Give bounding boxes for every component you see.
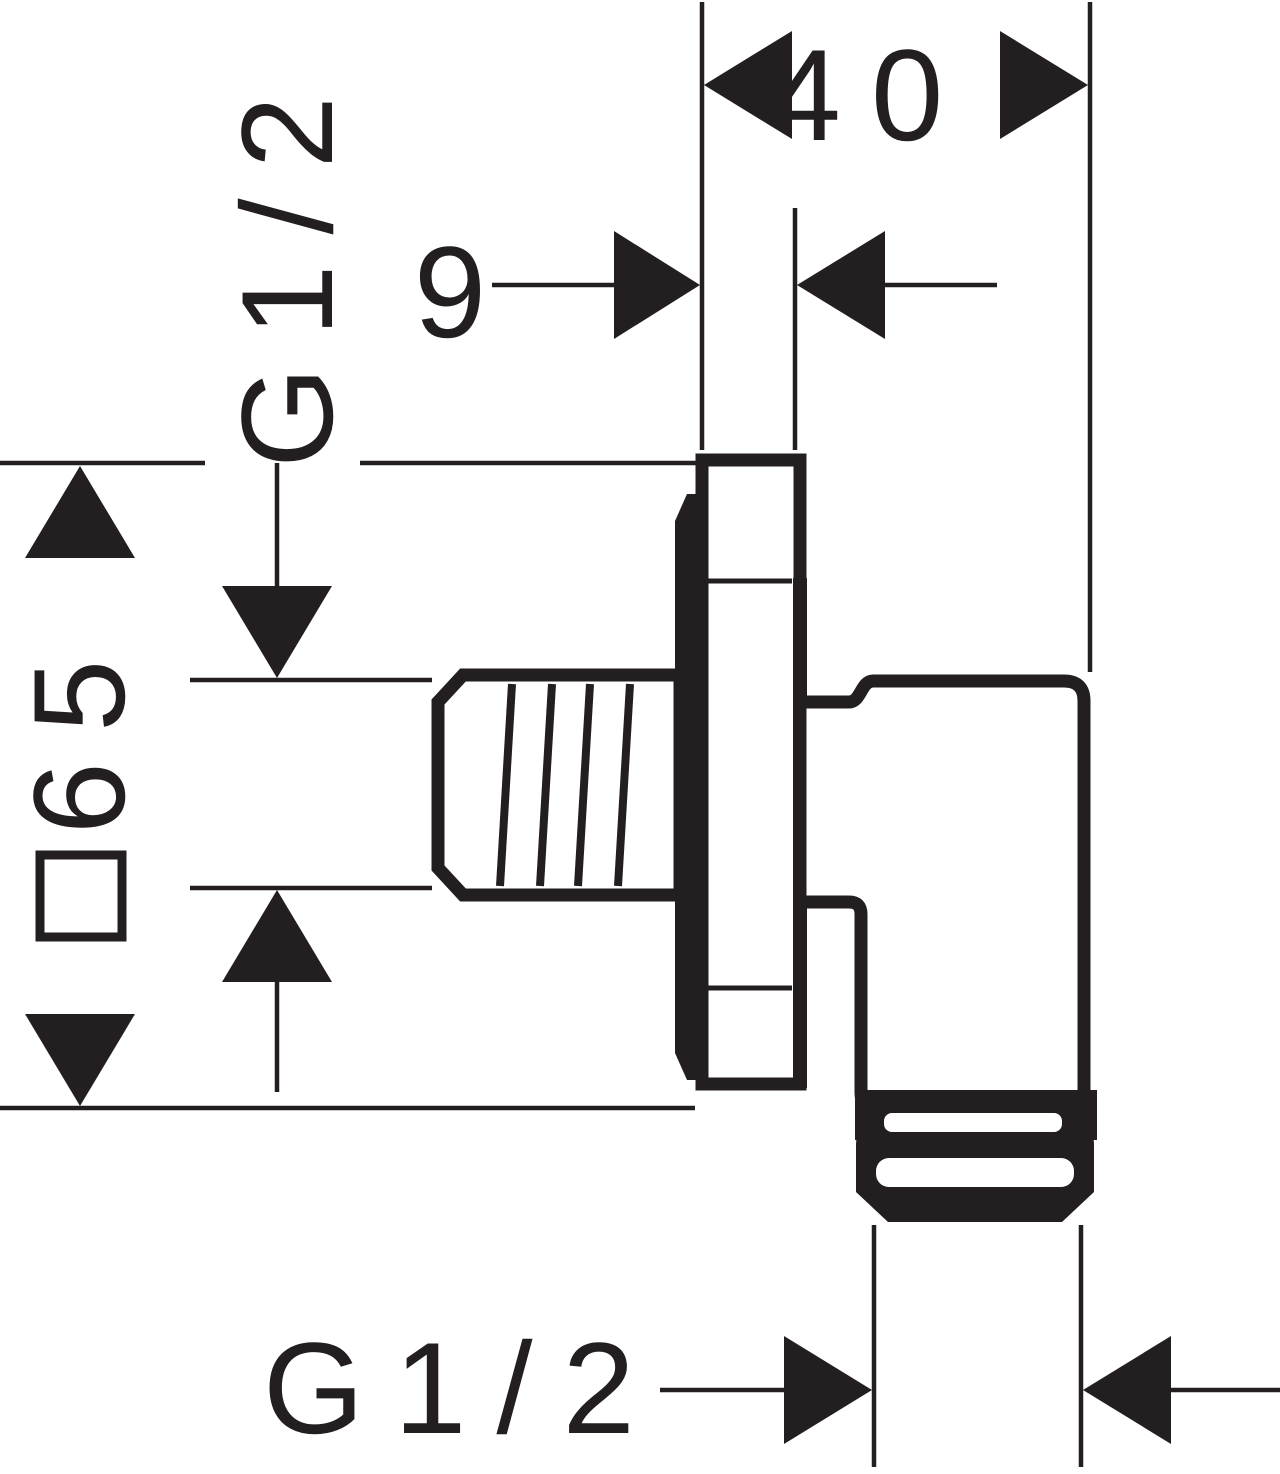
label-depth-40: 40 — [769, 22, 974, 168]
arrowhead-right-icon — [784, 1336, 872, 1444]
arrowhead-left-icon — [1083, 1336, 1171, 1444]
arrowhead-up-icon — [222, 890, 332, 982]
label-square-65: 65 — [6, 630, 152, 835]
threaded-nipple — [438, 675, 680, 895]
label-thread-bottom-g12: G1/2 — [263, 1315, 665, 1461]
arrowhead-up-icon — [25, 466, 135, 558]
technical-drawing: 40 9 G1/2 65 G1/2 — [0, 0, 1280, 1474]
collar-groove — [884, 1113, 1062, 1132]
nipple-outline — [438, 675, 680, 895]
label-thread-top-g12: G1/2 — [214, 66, 360, 468]
nut-groove — [876, 1158, 1074, 1187]
square-symbol — [40, 855, 122, 937]
label-thickness-9: 9 — [414, 219, 486, 365]
arrowhead-down-icon — [25, 1014, 135, 1106]
escutcheon-plate — [675, 460, 807, 1088]
arrowhead-right-icon — [614, 231, 700, 339]
arrowhead-right-icon — [1000, 31, 1088, 139]
arrowhead-down-icon — [222, 586, 332, 678]
valve-body — [800, 681, 1097, 1222]
body-outline — [800, 681, 1084, 1112]
drawing-page: 40 9 G1/2 65 G1/2 — [0, 0, 1280, 1474]
arrowhead-left-icon — [797, 231, 885, 339]
